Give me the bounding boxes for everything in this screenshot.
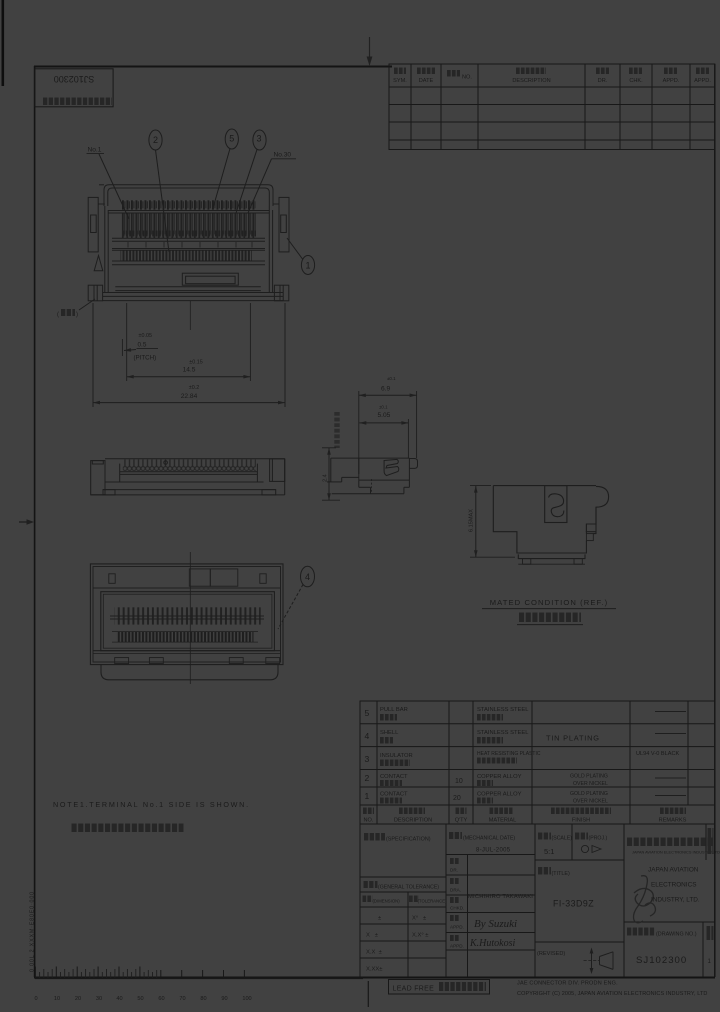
svg-text:0.5: 0.5 bbox=[138, 342, 147, 349]
svg-text:GOLD PLATING: GOLD PLATING bbox=[570, 791, 608, 797]
svg-text:8-JUL-2005: 8-JUL-2005 bbox=[476, 848, 511, 854]
svg-text:COPPER ALLOY: COPPER ALLOY bbox=[477, 792, 522, 798]
svg-text:HEAT RESISTING PLASTIC: HEAT RESISTING PLASTIC bbox=[477, 751, 541, 757]
svg-text:MICHIHIRO TAKAWAKI: MICHIHIRO TAKAWAKI bbox=[468, 894, 533, 900]
svg-text:DATE: DATE bbox=[419, 78, 434, 84]
svg-text:2: 2 bbox=[153, 135, 158, 145]
svg-text:SJ102300: SJ102300 bbox=[54, 74, 95, 84]
svg-text:(PITCH): (PITCH) bbox=[134, 355, 157, 362]
svg-text:±0.1: ±0.1 bbox=[387, 376, 396, 381]
svg-text:DESCRIPTION: DESCRIPTION bbox=[394, 818, 432, 824]
svg-text:±0.1: ±0.1 bbox=[379, 405, 388, 410]
svg-text:INDUSTRY, LTD.: INDUSTRY, LTD. bbox=[651, 897, 700, 904]
svg-text:(TOLERANCE): (TOLERANCE) bbox=[418, 899, 448, 904]
svg-text:30: 30 bbox=[96, 996, 102, 1002]
svg-text:OVER NICKEL: OVER NICKEL bbox=[573, 799, 608, 805]
svg-text:JAPAN AVIATION: JAPAN AVIATION bbox=[648, 867, 699, 874]
svg-text:±0.15: ±0.15 bbox=[189, 360, 202, 366]
svg-text:4: 4 bbox=[305, 572, 310, 582]
svg-text:FINISH: FINISH bbox=[572, 818, 590, 824]
svg-text:(MECHANICAL DATE): (MECHANICAL DATE) bbox=[463, 836, 515, 842]
svg-text:2: 2 bbox=[365, 773, 370, 783]
svg-text:DESCRIPTION: DESCRIPTION bbox=[512, 78, 550, 84]
svg-text:SHELL: SHELL bbox=[380, 730, 399, 736]
svg-text:COPYRIGHT (C) 2005, JAPAN AVIA: COPYRIGHT (C) 2005, JAPAN AVIATION ELECT… bbox=[517, 991, 708, 997]
svg-text:CHKD.: CHKD. bbox=[450, 906, 464, 911]
svg-text:14.5: 14.5 bbox=[183, 367, 196, 374]
svg-text:K.Hutokosi: K.Hutokosi bbox=[469, 938, 516, 949]
svg-text:TIN PLATING: TIN PLATING bbox=[546, 734, 600, 743]
svg-text:Q'TY: Q'TY bbox=[455, 818, 468, 824]
svg-text:CHK.: CHK. bbox=[629, 78, 643, 84]
svg-text:X.X ±: X.X ± bbox=[366, 950, 382, 956]
svg-text:±0.2: ±0.2 bbox=[189, 385, 199, 391]
svg-text:4: 4 bbox=[365, 731, 370, 741]
svg-text:X ±: X ± bbox=[366, 933, 378, 939]
svg-text:CONTACT: CONTACT bbox=[380, 792, 408, 798]
svg-text:LEAD FREE: LEAD FREE bbox=[393, 986, 435, 993]
svg-text:(REVISED): (REVISED) bbox=[537, 951, 565, 957]
svg-text:5: 5 bbox=[365, 708, 370, 718]
svg-text:6.15MAX: 6.15MAX bbox=[469, 509, 475, 532]
svg-text:10: 10 bbox=[54, 996, 60, 1002]
svg-text:(DIMENSION): (DIMENSION) bbox=[373, 899, 401, 904]
svg-text:(GENERAL TOLERANCE): (GENERAL TOLERANCE) bbox=[378, 885, 439, 891]
svg-text:0: 0 bbox=[34, 996, 37, 1002]
svg-text:1: 1 bbox=[305, 261, 310, 271]
svg-text:PULL BAR: PULL BAR bbox=[380, 707, 408, 713]
svg-text:DR.: DR. bbox=[598, 78, 608, 84]
svg-text:2.4: 2.4 bbox=[323, 474, 329, 482]
svg-text:80: 80 bbox=[200, 996, 206, 1002]
svg-text:(: ( bbox=[57, 312, 59, 318]
svg-text:3: 3 bbox=[256, 134, 261, 144]
svg-text:(PROJ.): (PROJ.) bbox=[589, 836, 608, 842]
svg-text:SJ102300: SJ102300 bbox=[636, 955, 687, 966]
svg-text:X° ±: X° ± bbox=[412, 916, 426, 922]
svg-text:MATERIAL: MATERIAL bbox=[489, 818, 517, 824]
svg-text:6.9: 6.9 bbox=[381, 386, 390, 393]
svg-text:NO.: NO. bbox=[364, 818, 374, 824]
svg-text:±0.05: ±0.05 bbox=[139, 333, 152, 339]
svg-text:20: 20 bbox=[453, 795, 461, 802]
svg-text:100: 100 bbox=[242, 996, 251, 1002]
svg-text:10: 10 bbox=[455, 778, 463, 785]
svg-text:ELECTRONICS: ELECTRONICS bbox=[651, 882, 696, 889]
svg-text:INSULATOR: INSULATOR bbox=[380, 753, 413, 759]
svg-text:CONTACT: CONTACT bbox=[380, 774, 408, 780]
svg-text:By Suzuki: By Suzuki bbox=[474, 918, 517, 930]
svg-text:JAPAN AVIATION ELECTRONICS IND: JAPAN AVIATION ELECTRONICS INDUSTRY,LTD. bbox=[632, 850, 720, 855]
svg-text:DRA.: DRA. bbox=[450, 888, 461, 893]
svg-text:): ) bbox=[76, 312, 78, 318]
svg-text:GOLD PLATING: GOLD PLATING bbox=[570, 774, 608, 780]
svg-text:5.05: 5.05 bbox=[378, 412, 391, 419]
svg-text:(SPECIFICATION): (SPECIFICATION) bbox=[386, 837, 431, 843]
svg-text:APPD.: APPD. bbox=[450, 925, 464, 930]
svg-text:STAINLESS STEEL: STAINLESS STEEL bbox=[477, 730, 529, 736]
svg-text:50: 50 bbox=[137, 996, 143, 1002]
svg-text:JAE CONNECTOR DIV. PRODN ENG.: JAE CONNECTOR DIV. PRODN ENG. bbox=[517, 981, 618, 987]
svg-text:60: 60 bbox=[158, 996, 164, 1002]
svg-text:FI-33D9Z: FI-33D9Z bbox=[553, 899, 594, 909]
svg-text:OVER NICKEL: OVER NICKEL bbox=[573, 781, 608, 787]
svg-text:22.84: 22.84 bbox=[181, 393, 198, 400]
svg-text:DR.: DR. bbox=[450, 868, 458, 873]
svg-text:NOTE1.TERMINAL No.1 SIDE IS SH: NOTE1.TERMINAL No.1 SIDE IS SHOWN. bbox=[53, 800, 250, 809]
svg-text:±: ± bbox=[378, 916, 381, 922]
svg-text:70: 70 bbox=[179, 996, 185, 1002]
svg-text:STAINLESS STEEL: STAINLESS STEEL bbox=[477, 707, 529, 713]
svg-text:1: 1 bbox=[365, 791, 370, 801]
svg-text:No.30: No.30 bbox=[274, 152, 292, 159]
svg-text:UL94 V-0 BLACK: UL94 V-0 BLACK bbox=[636, 751, 679, 757]
svg-text:REMARKS: REMARKS bbox=[659, 818, 687, 824]
svg-text:X.XX±: X.XX± bbox=[366, 967, 382, 973]
svg-text:APPD.: APPD. bbox=[663, 78, 680, 84]
svg-text:(SCALE): (SCALE) bbox=[552, 836, 573, 842]
svg-text:20: 20 bbox=[75, 996, 81, 1002]
svg-text:90: 90 bbox=[221, 996, 227, 1002]
svg-text:COPPER ALLOY: COPPER ALLOY bbox=[477, 774, 522, 780]
svg-text:APPD.: APPD. bbox=[450, 944, 464, 949]
svg-text:NO.: NO. bbox=[462, 75, 472, 81]
svg-text:MATED CONDITION (REF.): MATED CONDITION (REF.) bbox=[490, 598, 609, 607]
svg-text:No.1: No.1 bbox=[88, 147, 102, 154]
svg-text:(TITLE): (TITLE) bbox=[552, 871, 570, 877]
svg-text:3: 3 bbox=[365, 754, 370, 764]
svg-text:5:1: 5:1 bbox=[544, 847, 554, 856]
svg-text:40: 40 bbox=[116, 996, 122, 1002]
svg-text:(DRAWING NO.): (DRAWING NO.) bbox=[656, 932, 697, 938]
svg-text:SYM.: SYM. bbox=[393, 78, 407, 84]
svg-text:X.X° ±: X.X° ± bbox=[412, 933, 428, 939]
svg-text:0 00L 2 XXXM·E80E0·000: 0 00L 2 XXXM·E80E0·000 bbox=[30, 891, 36, 972]
svg-text:5: 5 bbox=[229, 134, 234, 144]
svg-text:APPD.: APPD. bbox=[694, 78, 711, 84]
